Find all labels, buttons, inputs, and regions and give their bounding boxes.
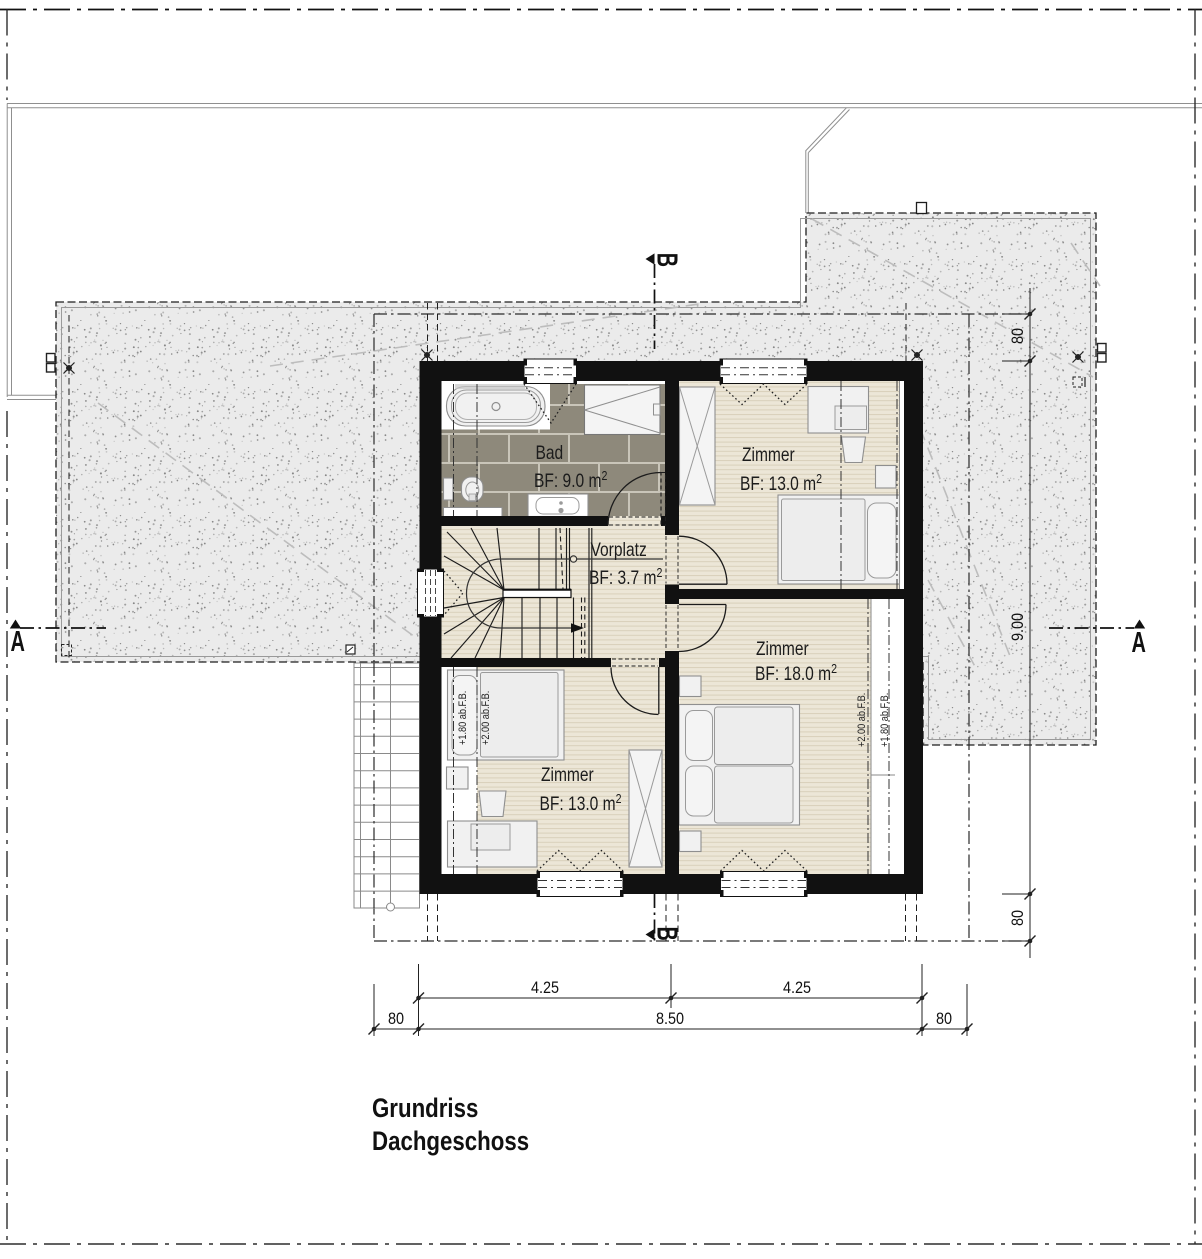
svg-text:Zimmer: Zimmer [742, 444, 795, 466]
svg-text:80: 80 [936, 1010, 952, 1028]
svg-text:+1.80 ab.F.B.: +1.80 ab.F.B. [457, 691, 469, 745]
svg-text:B: B [650, 927, 682, 941]
svg-text:BF: 13.0 m2: BF: 13.0 m2 [540, 791, 622, 814]
svg-text:9.00: 9.00 [1009, 613, 1027, 641]
svg-text:BF: 9.0 m2: BF: 9.0 m2 [534, 468, 607, 491]
svg-text:Zimmer: Zimmer [541, 764, 594, 786]
svg-text:+1.80 ab.F.B.: +1.80 ab.F.B. [879, 693, 891, 747]
svg-text:4.25: 4.25 [531, 979, 559, 997]
svg-text:A: A [1132, 628, 1147, 659]
svg-text:Vorplatz: Vorplatz [591, 539, 647, 561]
svg-text:+2.00 ab.F.B.: +2.00 ab.F.B. [480, 691, 492, 745]
svg-text:80: 80 [1009, 910, 1027, 926]
svg-text:A: A [11, 627, 26, 658]
svg-text:80: 80 [1009, 328, 1027, 344]
svg-text:Zimmer: Zimmer [756, 638, 809, 660]
svg-text:Bad: Bad [536, 442, 564, 464]
svg-text:Dachgeschoss: Dachgeschoss [372, 1127, 529, 1156]
svg-text:+2.00 ab.F.B.: +2.00 ab.F.B. [856, 693, 868, 747]
svg-text:BF: 18.0 m2: BF: 18.0 m2 [755, 661, 837, 684]
svg-text:B: B [650, 253, 682, 267]
svg-text:BF: 13.0 m2: BF: 13.0 m2 [740, 471, 822, 494]
svg-text:Grundriss: Grundriss [372, 1094, 478, 1123]
svg-text:BF: 3.7 m2: BF: 3.7 m2 [589, 565, 662, 588]
svg-text:4.25: 4.25 [783, 979, 811, 997]
svg-text:8.50: 8.50 [656, 1010, 684, 1028]
svg-text:80: 80 [388, 1010, 404, 1028]
